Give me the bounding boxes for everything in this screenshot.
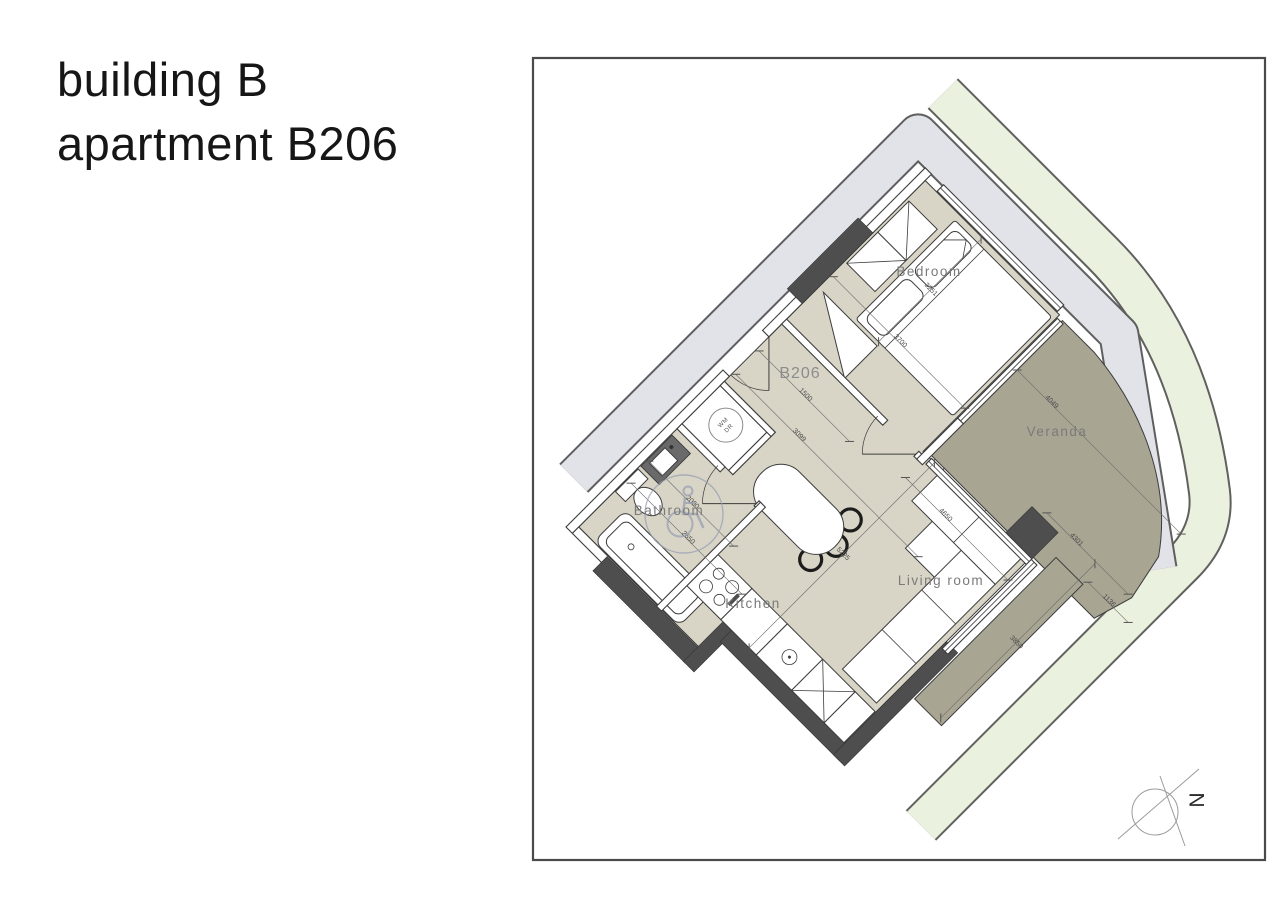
living-room-label: Living room: [898, 573, 984, 588]
north-label: N: [1186, 792, 1209, 807]
unit-number-label: B206: [779, 365, 820, 382]
bedroom-label: Bedroom: [896, 264, 961, 279]
page: { "title": { "line1": "building B", "lin…: [0, 0, 1280, 902]
bathroom-label: Bathroom: [634, 503, 705, 518]
kitchen-label: Kitchen: [725, 596, 781, 611]
veranda-label: Veranda: [1027, 424, 1088, 439]
floor-plan-canvas: WM DR 3251 3700 1500 3099 2000 2650 5225…: [0, 0, 1280, 902]
